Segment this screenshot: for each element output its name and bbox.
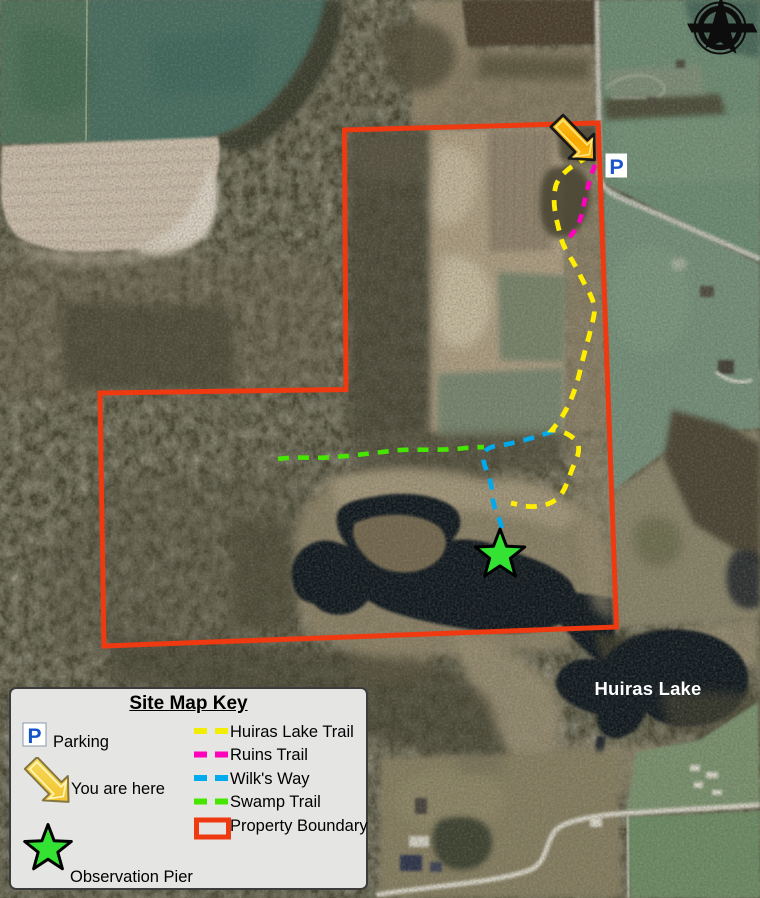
- svg-text:P: P: [609, 155, 623, 179]
- svg-text:Huiras Lake: Huiras Lake: [594, 678, 701, 699]
- svg-text:P: P: [27, 725, 41, 748]
